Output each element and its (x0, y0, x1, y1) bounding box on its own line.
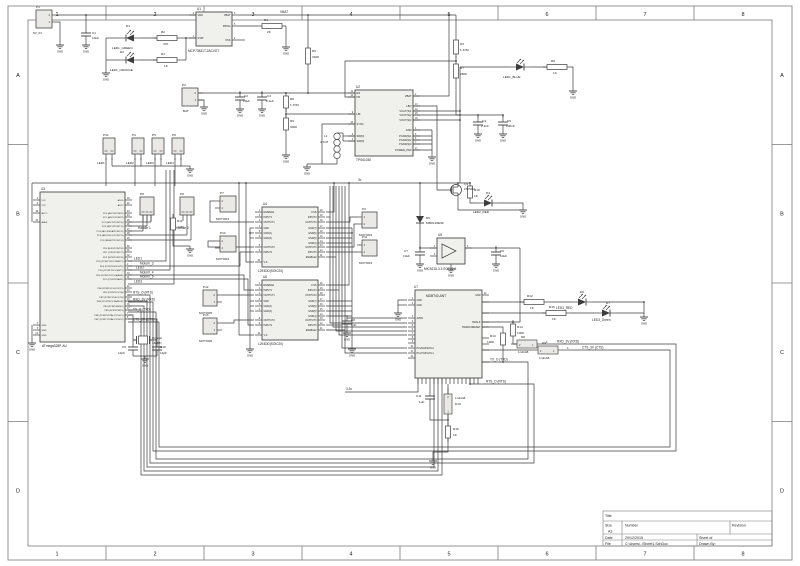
component-label: MOTOR1 (216, 217, 229, 221)
wire-segment (127, 52, 131, 56)
component-label: LED1_ORANGE (110, 68, 133, 72)
drawn-by-label: Drawn By: (699, 542, 716, 546)
sheet-of-label: Sheet of (699, 536, 712, 540)
component-C8: C81nF (342, 315, 356, 330)
component-label: R5 (312, 49, 316, 53)
component-label: P3 (362, 207, 366, 211)
wire (198, 100, 204, 104)
pin-name: VSS (225, 38, 230, 42)
pin-name: VBAT (405, 94, 412, 98)
connector-body (36, 10, 52, 28)
component-R16: R161K (446, 422, 459, 442)
pin-name: V-S (264, 261, 268, 264)
component-label: P7 (220, 191, 224, 195)
net-label: LED3_RED (556, 306, 573, 310)
wire-segment (485, 195, 489, 199)
pin-name: SWCLK (472, 321, 481, 324)
pin-name: GND (42, 335, 47, 337)
junction-dot (238, 182, 240, 184)
pin-name: PD7 (PCINT23/AIN1) (103, 278, 124, 281)
junction-dot (459, 114, 461, 116)
gnd-symbol: GND (569, 88, 577, 100)
grid-row-label: B (780, 212, 784, 218)
component-label: 1K (164, 64, 169, 68)
junction-dot (502, 114, 504, 116)
wire-segment (520, 60, 524, 64)
pin-name: GND(7) (308, 300, 316, 303)
component-label: P1 (36, 5, 40, 9)
component-Y1: Crystal16MHz (133, 336, 162, 345)
connector-P3: 12P3MOTOR4 (357, 207, 377, 237)
pin-name: ENABLE1 (264, 284, 275, 287)
gnd-symbol: GND (258, 106, 266, 118)
component-label: 4.7uH (320, 140, 328, 144)
gnd-symbol: GND (186, 246, 194, 258)
crystal-body (139, 336, 148, 344)
gnd-symbol: GND (474, 131, 482, 143)
component-label: C11 (416, 394, 422, 398)
component-R13: R13100K (487, 329, 506, 349)
inductor-loop (334, 146, 340, 152)
pin-name: PGND(S)3 (399, 142, 412, 146)
resistor-body (284, 96, 289, 108)
pin-name: SWDIO/NRESET (462, 326, 481, 329)
sheet-date: 29/12/2015 (625, 536, 643, 540)
component-label: LED4 (166, 161, 174, 165)
component-label: 1uF (419, 400, 424, 404)
wire-segment (130, 53, 134, 57)
gnd-symbol: GND (56, 42, 64, 54)
component-label: MOTOR6 (199, 339, 212, 343)
wire (326, 183, 349, 285)
junction-dot (643, 301, 645, 303)
ic-U4: U4L293DD(SOIC20)1ENABLE12INPUT13OUTPUT14… (255, 202, 325, 273)
component-C9: C914pF (118, 341, 138, 356)
gnd-label: GND (187, 174, 193, 178)
wire (336, 186, 407, 331)
gnd-label: GND (430, 466, 436, 470)
resistor-body (284, 118, 289, 130)
component-R5: R5340K (306, 44, 321, 68)
connector-P8: P8 (140, 192, 154, 221)
gnd-label: GND (201, 112, 207, 116)
ic-name: L293DD(SOIC20) (258, 342, 283, 346)
connector-P12: 21P12MOTOR5 (199, 285, 222, 315)
pin-name: PD6 (PCINT22/OC0A/AIN0) (96, 274, 124, 277)
component-label: R15 (549, 305, 555, 309)
junction-dot (85, 14, 87, 16)
ic-ref: U3 (41, 187, 45, 191)
pin-name: PC6 (RESET/PCINT14) (100, 240, 123, 242)
wire (413, 15, 449, 96)
pin-name: INPUT3 (308, 324, 317, 327)
component-R11: R1110K (171, 214, 185, 234)
component-label: R7 (460, 66, 464, 70)
ic-name: MDBT40-ANT (426, 294, 446, 298)
grid-row-label: B (16, 212, 20, 218)
gnd-label: GND (570, 96, 576, 100)
component-label: MOTOR2 (216, 257, 229, 261)
component-D10: 211n4148D10 (444, 388, 466, 420)
gnd-label: GND (493, 269, 499, 273)
component-label: D5 (426, 216, 430, 220)
component-label: D7 (606, 301, 610, 305)
wire-segment (582, 295, 586, 299)
size-label: Size (605, 524, 612, 528)
resistor-body (547, 65, 567, 70)
component-D5: D5MBR120ESF (416, 210, 444, 229)
wire (345, 186, 407, 353)
resistor-body (157, 36, 177, 41)
component-label: C3 (267, 94, 271, 98)
pin-name: ENABLE2 (306, 256, 317, 259)
component-R2: R2470 (153, 30, 181, 46)
pin-name: GND(5) (308, 237, 316, 240)
pin-name: V-SS (311, 284, 317, 287)
component-R10: R101K (468, 182, 480, 202)
led-triangle (578, 299, 586, 306)
ic-name: ATmega328P-AU (42, 344, 67, 348)
component-label: C8 (351, 318, 355, 322)
grid-row-label: C (780, 350, 784, 356)
component-label: 1K (530, 306, 535, 310)
wire-segment (603, 305, 607, 309)
pin-name: PGND(S)2 (399, 138, 412, 142)
gnd-label: GND (500, 139, 506, 143)
component-label: 5V_IN (33, 31, 42, 35)
component-label: C2 (244, 94, 248, 98)
component-label: 1n4148 (539, 356, 550, 360)
pin-name: INPUT1 (264, 216, 273, 219)
pin-name: INPUT3 (308, 251, 317, 254)
pin-name: GND (417, 299, 423, 302)
component-label: P9 (180, 192, 184, 196)
component-label: C10 (160, 345, 166, 349)
component-R4: R41K (153, 52, 181, 68)
net-label: LED3_Green (592, 318, 611, 322)
gnd-symbol: GND (394, 310, 402, 322)
component-label: R3 (460, 42, 464, 46)
gnd-symbol: GND (282, 44, 290, 56)
connector-P9: P9 (180, 192, 194, 221)
pin-name: GND (42, 330, 47, 332)
net-label: 3v (358, 178, 362, 182)
grid-column-label: 7 (643, 12, 646, 18)
inductor-loop (334, 133, 340, 139)
component-label: 280K (460, 72, 468, 76)
pin-name: INPUT2 (264, 251, 273, 254)
pin-name: OUTPUT3 (305, 319, 317, 322)
gnd-symbol: GND (416, 261, 424, 273)
pin-name: PB6 (PCINT6/XTAL1/TOSC1) (95, 314, 124, 317)
gnd-symbol: GND (200, 104, 208, 116)
pin-name: PD5 (PCINT21/OC0B/T1) (98, 270, 123, 272)
led-triangle (126, 35, 134, 42)
ic-name: MCP73831T-2ACI/OT (188, 49, 219, 53)
grid-column-label: 7 (643, 552, 646, 558)
schematic-sheet: 1122334455667788AABBCCDD 21P15V_IN21P2BA… (0, 0, 800, 566)
ic-U6: U6L293DD(SOIC20)1ENABLE12INPUT13OUTPUT14… (255, 275, 325, 346)
ic-U2: U2TPS6103011EN14FB9LBI10SYNC3SW(N)4SW(N)… (348, 85, 420, 162)
net-label: RTS_O (RTS) (133, 291, 153, 295)
component-label: 2K (267, 30, 272, 34)
ic-body (415, 290, 482, 378)
net-label: RXD_3V (RXD) (133, 298, 155, 302)
net-label: RXD_3V (RXD) (557, 340, 579, 344)
pin-name: SYNC (357, 122, 364, 126)
component-label: 2N7002 (464, 187, 475, 191)
component-label: P11 (362, 235, 368, 239)
wire-segment (579, 294, 583, 298)
outer-border (8, 6, 792, 560)
pin-name: PB7 (PCINT7/XTAL2/TOSC2) (95, 318, 124, 321)
component-label: 1 (546, 340, 548, 344)
pin-name: PD1 (TXD/PCINT17) (103, 252, 124, 254)
pin-name: GND(5) (308, 310, 316, 313)
component-D2: D2LED1_ORANGE (110, 50, 140, 72)
revision-label: Revision (732, 524, 746, 528)
component-C5: C5100nF (498, 116, 515, 131)
component-label: 1K (552, 317, 557, 321)
wire (513, 248, 520, 322)
connector-body (152, 138, 164, 154)
pin-name: GND(4) (308, 315, 316, 318)
gnd-symbol: GND (492, 261, 500, 273)
number-label: Number (625, 524, 639, 528)
component-C11: C111uF (416, 390, 435, 405)
component-label: 1n4148 (455, 396, 466, 400)
component-label: 10uF (92, 36, 99, 40)
component-label: P2 (182, 83, 186, 87)
pin-name: OUTPUT1 (264, 294, 276, 297)
pin-name: GND(6) (308, 232, 316, 235)
component-label: 14pF (160, 351, 167, 355)
pin-name: VOUT(S)3 (399, 118, 412, 122)
component-label: 10uF (403, 254, 410, 258)
component-label: MOTOR3 (359, 261, 372, 265)
component-C1: C110uF (81, 27, 99, 42)
gnd-label: GND (283, 160, 289, 164)
pin-name: OUTPUT1 (264, 221, 276, 224)
net-label: TX_O (TXD) (490, 358, 508, 362)
pin-name: P0.27/AIN1/XL1 (417, 352, 435, 355)
gnd-symbol: GND (236, 106, 244, 118)
gnd-symbol: GND (246, 346, 254, 358)
component-label: 1.37M (460, 48, 469, 52)
pin-name: V-S (264, 334, 268, 337)
component-label: 340K (312, 55, 320, 59)
gnd-label: GND (417, 269, 423, 273)
gnd-label: GND (142, 364, 148, 368)
wire-layer (32, 14, 676, 475)
pin-name: AREF (42, 221, 48, 224)
pin-name: AVCC (42, 212, 48, 215)
gnd-label: GND (283, 52, 289, 56)
net-label: 3.3v (346, 387, 352, 391)
pin-name: GND (264, 227, 270, 230)
wire (470, 202, 478, 203)
component-label: D8 (521, 335, 525, 339)
gnd-label: GND (429, 162, 435, 166)
resistor-body (446, 426, 451, 438)
pin-name: GND(7) (308, 227, 316, 230)
pin-name: AVDD (417, 317, 424, 320)
file-path: C:\Users\..\Sheet1.SchDoc (625, 542, 668, 546)
net-label: RTS_O (RTS) (486, 380, 506, 384)
component-C4: C42.2nF (473, 116, 489, 131)
sheet-size: A3 (608, 530, 612, 534)
title-block-frame (603, 511, 772, 546)
component-L1: L14.7uH (320, 133, 340, 159)
connector-body (132, 138, 144, 154)
connector-P7: 21P7MOTOR1 (215, 191, 236, 221)
gnd-label: GND (29, 348, 35, 352)
resistor-body (157, 58, 177, 63)
gnd-label: GND (520, 215, 526, 219)
component-label: P10 (220, 231, 226, 235)
junction-dot (477, 114, 479, 116)
component-label: P14 (103, 133, 109, 137)
pin-name: STAT (198, 36, 205, 40)
component-label: P6 (172, 133, 176, 137)
gnd-symbol: GND (499, 131, 507, 143)
pin-name: SW(N) (357, 134, 365, 138)
grid-column-label: 5 (447, 552, 450, 558)
net-label: LED1 (134, 257, 142, 261)
inductor-loop (334, 139, 340, 145)
wire (128, 170, 170, 270)
component-label: 1 (567, 346, 569, 350)
component-label: D9 (542, 341, 546, 345)
gnd-label: GND (304, 172, 310, 176)
gnd-symbol: GND (519, 207, 527, 219)
component-label: 16MHz (152, 341, 162, 345)
wire-segment (488, 196, 492, 200)
grid-row-label: A (780, 73, 784, 79)
wire (513, 340, 517, 344)
pin-name: GND(4) (308, 242, 316, 245)
grid-column-label: 6 (545, 552, 548, 558)
component-label: R14 (517, 325, 523, 329)
gnd-label: GND (57, 50, 63, 54)
grid-column-label: 4 (349, 552, 352, 558)
pin-name: VBAT (224, 13, 231, 17)
component-label: 340K (290, 125, 298, 129)
connector-body (182, 88, 198, 106)
component-D_BLUE: LED1_BLUE (503, 59, 530, 79)
gnd-label: GND (103, 78, 109, 82)
wire-segment (606, 306, 610, 310)
gnd-symbol: GND (428, 154, 436, 166)
net-label: LED2 (136, 266, 144, 270)
component-label: P13 (203, 313, 209, 317)
pin-name: GND(3) (264, 237, 272, 240)
component-R8: R81.37M (284, 92, 300, 112)
component-label: R13 (490, 334, 496, 338)
component-label: 1K (553, 71, 558, 75)
pin-name: GND(2) (264, 305, 272, 308)
pin-name: GND(2) (264, 232, 272, 235)
pin-name: PD3 (PCINT19/OC2B/INT1) (96, 261, 123, 263)
pin-name: VCC (42, 200, 47, 202)
inductor-loop (334, 152, 340, 158)
wire (433, 438, 448, 458)
resistor-body (306, 48, 311, 64)
component-label: LED1 (97, 161, 105, 165)
component-label: C7 (404, 249, 408, 253)
component-label: BAT (183, 109, 189, 113)
gnd-symbol: GND (640, 314, 648, 326)
component-label: Q1 (464, 182, 468, 186)
title-label: Title (605, 514, 612, 518)
wire (345, 378, 418, 392)
sheet-frame: 1122334455667788AABBCCDD (8, 6, 792, 560)
component-label: 470 (163, 42, 168, 46)
connector-P11: 12P11MOTOR3 (357, 235, 377, 265)
ic-ref: U5 (438, 233, 442, 237)
pin-name: INPUT1 (264, 289, 273, 292)
gnd-symbol: GND (282, 152, 290, 164)
grid-row-label: A (16, 73, 20, 79)
component-label: 1K (453, 433, 458, 437)
net-label: CTS_3V (CTS) (582, 346, 603, 350)
pin-name: PD4 (PCINT20/XCK/T0) (100, 266, 124, 268)
component-label: R2 (161, 30, 165, 34)
pin-name: OUTPUT3 (305, 246, 317, 249)
pin-name: INPUT2 (264, 324, 273, 327)
ic-ref: U4 (263, 202, 267, 206)
grid-row-label: D (780, 489, 784, 495)
gnd-symbol: GND (186, 166, 194, 178)
net-label: TX_O (TXD) (133, 308, 151, 312)
ic-U1: U1MCP73831T-2ACI/OT4VDD1STAT3VBAT5PROG2V… (188, 7, 239, 53)
pin-name: PC2 (ADC2/PCINT10) (102, 221, 124, 224)
component-label: L1 (324, 134, 328, 138)
junction-dot (448, 14, 450, 16)
grid-column-label: 8 (741, 12, 744, 18)
ic-U7: U7MDBT40-ANT1GND2GND3AVDD45678910P0.26/A… (408, 285, 489, 384)
component-R12: R121K (520, 294, 548, 310)
component-label: LED1_BLUE (503, 75, 521, 79)
junction-dot (419, 182, 421, 184)
wire-segment (130, 31, 134, 35)
component-label: 1.37M (290, 103, 299, 107)
component-label: P5 (152, 133, 156, 137)
pin-name: PC5 (ADC5/SCL/PCINT13) (97, 234, 124, 237)
component-label: R11 (177, 219, 183, 223)
connector-P10: 21P10MOTOR2 (215, 231, 236, 261)
pin-name: PC4 (ADC4/SDA/PCINT12) (97, 230, 124, 233)
pin-name: GND (406, 128, 412, 132)
gnd-label: GND (247, 354, 253, 358)
pin-name: VOUT(S)2 (399, 113, 412, 117)
component-label: R6 (551, 59, 555, 63)
component-label: P8 (140, 192, 144, 196)
ic-U5: U5MIC5215-3.3 SOT23-5135 (424, 233, 472, 271)
mosfet-body (451, 185, 462, 196)
gnd-label: GND (259, 114, 265, 118)
pin-name: PC0 (ADC0/PCINT8) (103, 212, 124, 215)
component-label: D6 (580, 290, 584, 294)
resistor-body (511, 324, 516, 336)
component-R3: R31.37M (454, 36, 470, 58)
pin-name: INPUT4 (308, 289, 317, 292)
net-label: LED3 (134, 280, 142, 284)
wire (456, 82, 460, 115)
gnd-label: GND (475, 139, 481, 143)
component-label: C1 (92, 31, 96, 35)
pin-name: ADC7 (118, 204, 125, 207)
